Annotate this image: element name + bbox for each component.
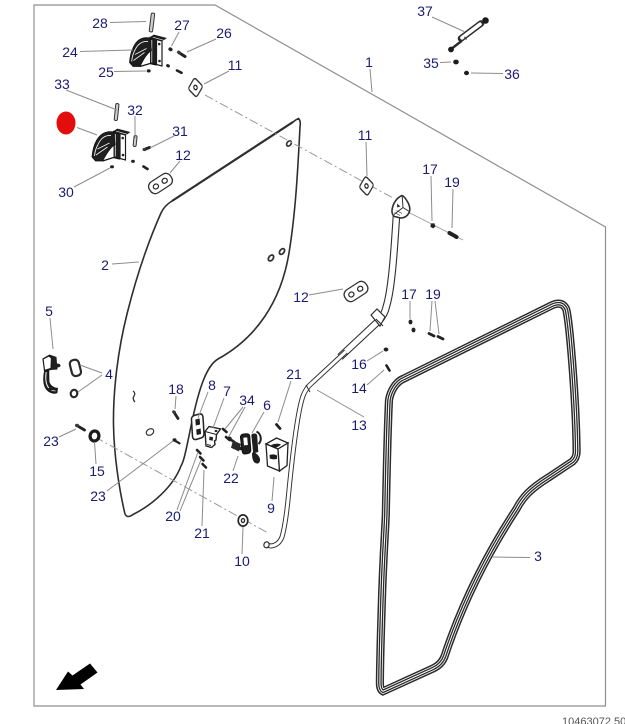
svg-text:19: 19 xyxy=(425,286,441,302)
svg-text:18: 18 xyxy=(168,381,184,397)
svg-text:21: 21 xyxy=(194,525,210,541)
svg-text:17: 17 xyxy=(422,161,438,177)
svg-text:4: 4 xyxy=(105,366,113,382)
svg-text:27: 27 xyxy=(174,17,190,33)
svg-text:19: 19 xyxy=(444,174,460,190)
svg-text:2: 2 xyxy=(101,257,109,273)
svg-text:14: 14 xyxy=(351,380,367,396)
svg-text:5: 5 xyxy=(45,303,53,319)
svg-text:15: 15 xyxy=(89,463,105,479)
svg-text:20: 20 xyxy=(165,508,181,524)
svg-text:17: 17 xyxy=(401,286,417,302)
svg-text:37: 37 xyxy=(417,3,433,19)
svg-text:12: 12 xyxy=(293,289,309,305)
svg-text:35: 35 xyxy=(423,55,439,71)
svg-text:9: 9 xyxy=(267,500,275,516)
svg-text:3: 3 xyxy=(534,548,542,564)
svg-text:36: 36 xyxy=(504,66,520,82)
svg-text:25: 25 xyxy=(98,64,114,80)
svg-text:16: 16 xyxy=(351,356,367,372)
svg-text:34: 34 xyxy=(239,392,255,408)
svg-text:8: 8 xyxy=(208,377,216,393)
svg-text:11: 11 xyxy=(228,57,243,73)
svg-text:1: 1 xyxy=(365,54,373,70)
svg-text:6: 6 xyxy=(263,397,271,413)
svg-text:21: 21 xyxy=(286,366,302,382)
svg-text:23: 23 xyxy=(43,433,59,449)
svg-text:7: 7 xyxy=(223,383,231,399)
svg-text:11: 11 xyxy=(358,127,373,143)
svg-text:12: 12 xyxy=(175,147,191,163)
svg-text:31: 31 xyxy=(172,123,188,139)
svg-text:24: 24 xyxy=(62,44,78,60)
svg-text:32: 32 xyxy=(127,102,143,118)
svg-text:28: 28 xyxy=(92,15,108,31)
svg-text:23: 23 xyxy=(90,488,106,504)
svg-text:26: 26 xyxy=(216,25,232,41)
svg-text:10463072 50.2: 10463072 50.2 xyxy=(562,716,625,724)
svg-text:10: 10 xyxy=(234,553,250,569)
svg-text:22: 22 xyxy=(223,470,239,486)
svg-text:30: 30 xyxy=(58,184,74,200)
svg-text:13: 13 xyxy=(351,417,367,433)
svg-text:33: 33 xyxy=(54,76,70,92)
